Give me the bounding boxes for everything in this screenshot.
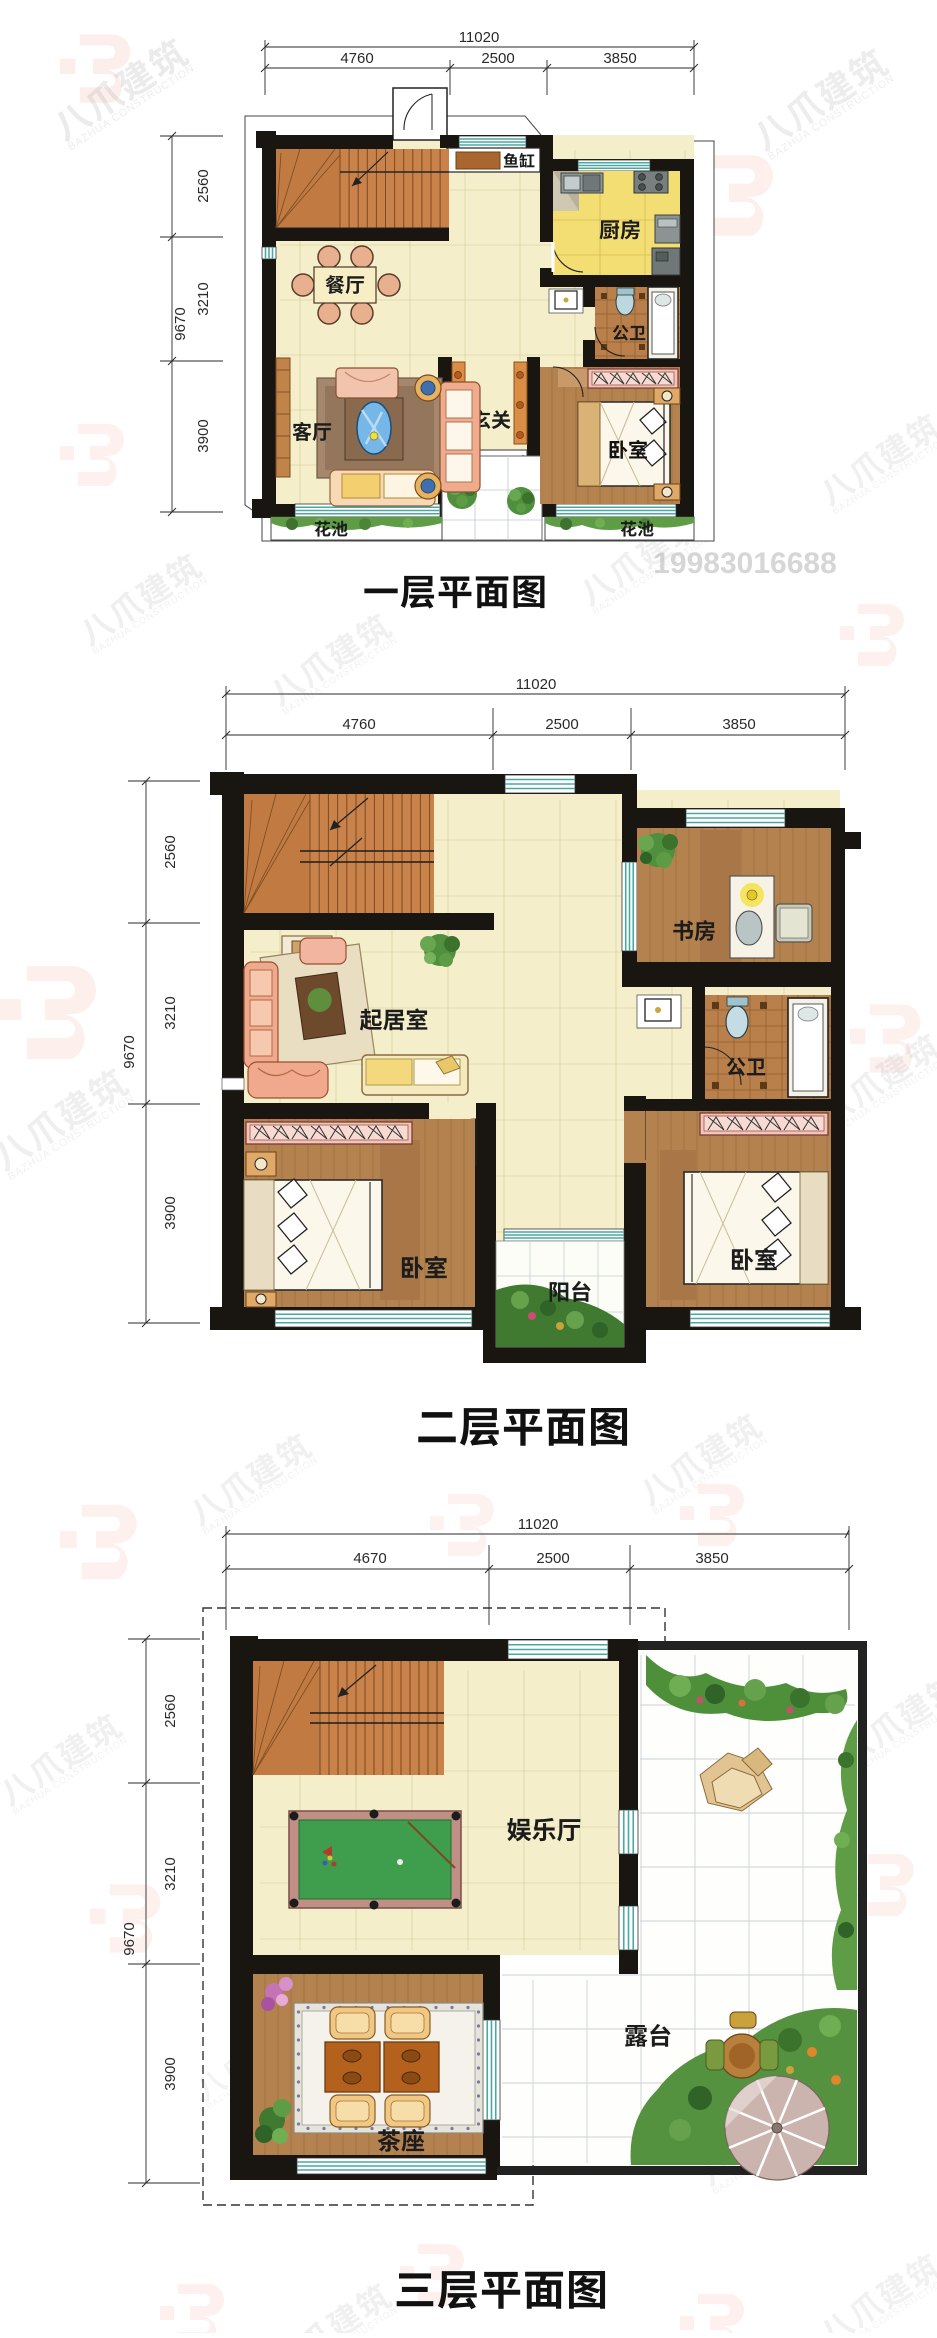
svg-text:3210: 3210 bbox=[195, 282, 212, 315]
svg-text:BAZHUA CONSTRUCTION: BAZHUA CONSTRUCTION bbox=[766, 72, 897, 163]
svg-text:BAZHUA CONSTRUCTION: BAZHUA CONSTRUCTION bbox=[281, 635, 401, 718]
svg-text:2560: 2560 bbox=[162, 835, 179, 868]
svg-text:2500: 2500 bbox=[536, 1550, 569, 1567]
svg-text:9670: 9670 bbox=[172, 307, 189, 340]
svg-text:3210: 3210 bbox=[162, 996, 179, 1029]
svg-text:BAZHUA CONSTRUCTION: BAZHUA CONSTRUCTION bbox=[11, 1735, 131, 1818]
svg-text:4760: 4760 bbox=[342, 716, 375, 733]
svg-text:3900: 3900 bbox=[162, 2057, 179, 2090]
svg-text:2560: 2560 bbox=[162, 1694, 179, 1727]
svg-text:3850: 3850 bbox=[722, 716, 755, 733]
svg-text:3900: 3900 bbox=[162, 1196, 179, 1229]
svg-text:2500: 2500 bbox=[481, 50, 514, 67]
svg-text:2500: 2500 bbox=[545, 716, 578, 733]
svg-text:3850: 3850 bbox=[603, 50, 636, 67]
svg-text:3850: 3850 bbox=[695, 1550, 728, 1567]
svg-text:3900: 3900 bbox=[195, 419, 212, 452]
svg-text:11020: 11020 bbox=[518, 1516, 559, 1533]
svg-text:4760: 4760 bbox=[340, 50, 373, 67]
svg-text:BAZHUA CONSTRUCTION: BAZHUA CONSTRUCTION bbox=[66, 62, 197, 153]
svg-text:BAZHUA CONSTRUCTION: BAZHUA CONSTRUCTION bbox=[201, 1455, 321, 1538]
svg-text:BAZHUA CONSTRUCTION: BAZHUA CONSTRUCTION bbox=[651, 1435, 771, 1518]
svg-text:11020: 11020 bbox=[516, 676, 557, 693]
svg-text:3210: 3210 bbox=[162, 1857, 179, 1890]
svg-text:BAZHUA CONSTRUCTION: BAZHUA CONSTRUCTION bbox=[91, 575, 211, 658]
svg-text:11020: 11020 bbox=[459, 29, 500, 46]
svg-text:9670: 9670 bbox=[121, 1035, 138, 1068]
svg-text:2560: 2560 bbox=[195, 169, 212, 202]
svg-text:4670: 4670 bbox=[353, 1550, 386, 1567]
svg-text:19983016688: 19983016688 bbox=[653, 547, 837, 580]
svg-text:9670: 9670 bbox=[121, 1922, 138, 1955]
svg-text:BAZHUA CONSTRUCTION: BAZHUA CONSTRUCTION bbox=[6, 1092, 137, 1183]
